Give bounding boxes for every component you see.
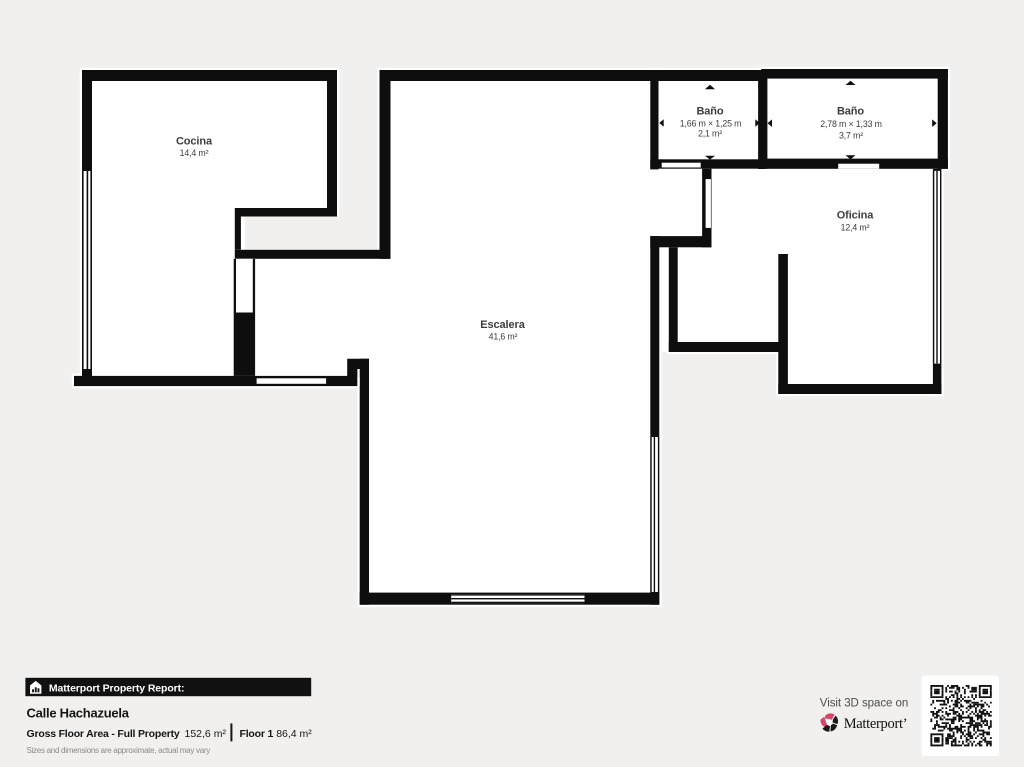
svg-text:Calle Hachazuela: Calle Hachazuela xyxy=(27,705,130,720)
svg-text:Cocina: Cocina xyxy=(176,136,213,148)
svg-text:14,4 m²: 14,4 m² xyxy=(180,148,209,158)
svg-text:152,6 m²: 152,6 m² xyxy=(185,728,227,740)
svg-text:Matterport Property Report:: Matterport Property Report: xyxy=(49,683,185,695)
svg-text:Baño: Baño xyxy=(837,106,864,118)
svg-text:Sizes and dimensions are appro: Sizes and dimensions are approximate, ac… xyxy=(27,746,211,755)
svg-text:Baño: Baño xyxy=(696,106,723,118)
svg-text:86,4 m²: 86,4 m² xyxy=(276,728,312,740)
svg-text:2,78 m × 1,33 m: 2,78 m × 1,33 m xyxy=(820,119,882,129)
svg-text:Gross Floor Area - Full Proper: Gross Floor Area - Full Property xyxy=(27,728,180,740)
svg-text:Matterport’: Matterport’ xyxy=(844,716,908,732)
svg-text:Visit 3D space on: Visit 3D space on xyxy=(820,698,908,710)
svg-text:Oficina: Oficina xyxy=(837,210,875,222)
svg-text:Floor 1: Floor 1 xyxy=(240,728,274,740)
svg-text:41,6 m²: 41,6 m² xyxy=(489,331,518,341)
svg-text:Escalera: Escalera xyxy=(480,319,525,331)
svg-text:2,1 m²: 2,1 m² xyxy=(698,129,722,139)
svg-text:12,4 m²: 12,4 m² xyxy=(841,223,870,233)
svg-text:1,66 m × 1,25 m: 1,66 m × 1,25 m xyxy=(680,119,742,129)
svg-text:3,7 m²: 3,7 m² xyxy=(839,131,863,141)
